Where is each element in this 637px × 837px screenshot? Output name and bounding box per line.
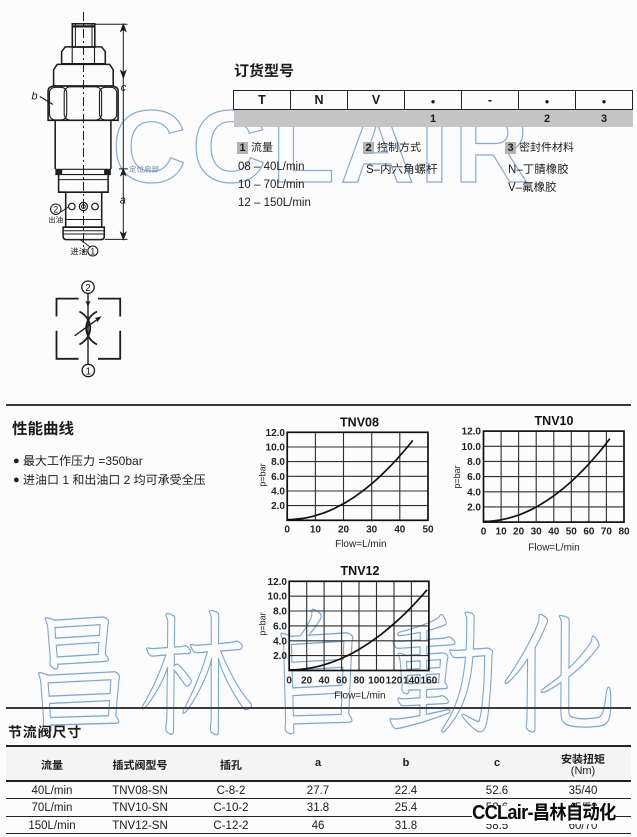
svg-text:TNV10: TNV10 — [535, 414, 574, 428]
svg-text:TNV12: TNV12 — [341, 564, 380, 578]
svg-text:40: 40 — [319, 676, 331, 687]
svg-text:c: c — [121, 82, 127, 94]
svg-text:6.0: 6.0 — [273, 621, 287, 632]
svg-text:Flow=L/min: Flow=L/min — [334, 691, 385, 702]
svg-text:20: 20 — [513, 527, 525, 538]
svg-text:p=bar: p=bar — [258, 612, 268, 635]
svg-text:出油: 出油 — [48, 214, 63, 225]
svg-text:100: 100 — [368, 676, 385, 687]
svg-text:50: 50 — [566, 527, 578, 538]
svg-text:0: 0 — [286, 676, 292, 687]
svg-text:30: 30 — [531, 527, 543, 538]
svg-text:50: 50 — [422, 525, 434, 536]
svg-text:80: 80 — [353, 676, 365, 687]
svg-text:4.0: 4.0 — [271, 487, 285, 498]
svg-text:140: 140 — [403, 676, 420, 687]
svg-text:TNV08: TNV08 — [340, 416, 379, 430]
svg-text:Flow=L/min: Flow=L/min — [335, 539, 386, 550]
svg-text:4.0: 4.0 — [273, 636, 287, 647]
svg-text:60: 60 — [583, 527, 595, 538]
svg-text:40: 40 — [394, 525, 406, 536]
svg-text:p=bar: p=bar — [258, 463, 268, 486]
svg-text:定位肩部: 定位肩部 — [129, 164, 159, 175]
svg-text:1: 1 — [86, 366, 92, 377]
svg-text:10.0: 10.0 — [266, 443, 286, 454]
svg-text:12.0: 12.0 — [266, 428, 286, 439]
svg-text:0: 0 — [284, 525, 290, 536]
svg-text:12.0: 12.0 — [268, 577, 288, 588]
svg-text:p=bar: p=bar — [452, 465, 462, 488]
svg-text:40: 40 — [548, 527, 560, 538]
svg-text:2.0: 2.0 — [271, 501, 285, 512]
svg-text:10.0: 10.0 — [268, 592, 288, 603]
svg-text:2: 2 — [53, 205, 58, 215]
svg-text:10.0: 10.0 — [462, 442, 482, 453]
svg-text:2: 2 — [85, 283, 91, 294]
svg-text:2.0: 2.0 — [467, 502, 481, 513]
svg-text:70: 70 — [601, 527, 613, 538]
svg-text:2.0: 2.0 — [273, 651, 287, 662]
svg-text:6.0: 6.0 — [467, 472, 481, 483]
svg-text:20: 20 — [338, 525, 350, 536]
svg-text:0: 0 — [481, 527, 487, 538]
svg-text:120: 120 — [386, 676, 403, 687]
svg-text:30: 30 — [366, 525, 378, 536]
svg-text:12.0: 12.0 — [462, 427, 482, 438]
svg-text:20: 20 — [301, 676, 313, 687]
svg-text:8.0: 8.0 — [271, 457, 285, 468]
svg-text:a: a — [120, 195, 126, 207]
svg-text:4.0: 4.0 — [467, 487, 481, 498]
svg-text:8.0: 8.0 — [273, 607, 287, 618]
svg-text:b: b — [32, 91, 38, 103]
svg-text:160: 160 — [421, 676, 438, 687]
svg-text:1: 1 — [90, 246, 95, 256]
svg-text:10: 10 — [310, 525, 322, 536]
svg-text:8.0: 8.0 — [467, 457, 481, 468]
svg-text:6.0: 6.0 — [271, 472, 285, 483]
svg-text:80: 80 — [618, 527, 630, 538]
svg-text:10: 10 — [496, 527, 508, 538]
svg-text:Flow=L/min: Flow=L/min — [528, 543, 579, 554]
svg-text:进油: 进油 — [70, 246, 87, 258]
svg-text:60: 60 — [336, 676, 348, 687]
